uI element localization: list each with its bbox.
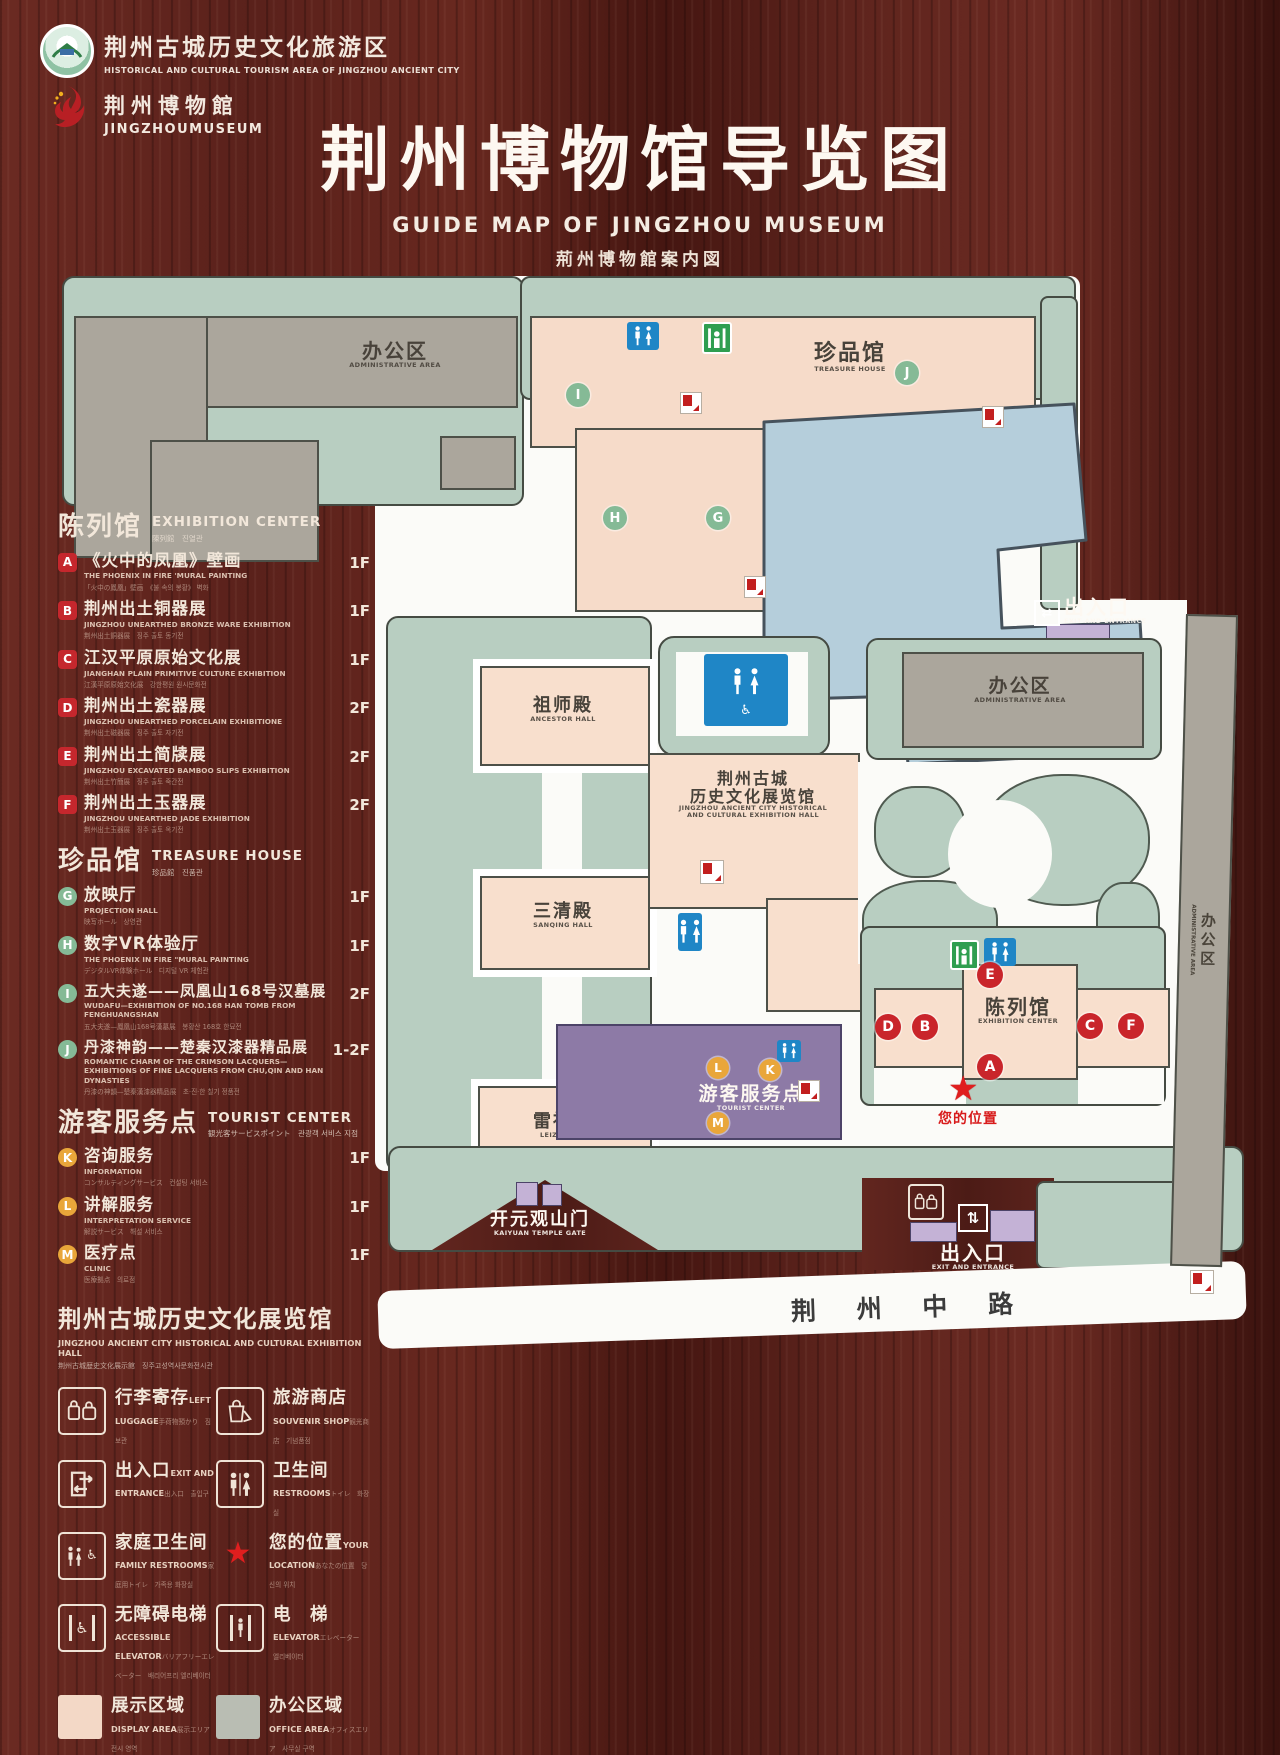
facility-left-luggage: 行李寄存LEFT LUGGAGE手荷物預かり 짐 보관 (58, 1387, 216, 1446)
row-en: CLINIC (84, 1264, 328, 1273)
wheelchair-icon: ♿ (75, 1621, 88, 1636)
map-marker-b: B (912, 1014, 938, 1040)
row-sub: 映写ホール 상영관 (84, 916, 328, 926)
legend-row-j: J 丹漆神韵——楚秦汉漆器精品展ROMANTIC CHARM OF THE CR… (58, 1039, 370, 1096)
badge-c: C (58, 650, 77, 669)
map-marker-k: K (759, 1059, 781, 1081)
page-title-jp: 荊州博物館案内図 (0, 245, 1280, 270)
title-block: 荆州博物馆导览图 GUIDE MAP OF JINGZHOU MUSEUM 荊州… (0, 104, 1280, 297)
legend-row-h: H 数字VR体验厅THE PHOENIX IN FIRE "MURAL PAIN… (58, 935, 370, 975)
row-floor: 1F (328, 1196, 370, 1216)
facility-exit-entrance: 出入口EXIT AND ENTRANCE出入口 출입구 (58, 1460, 216, 1519)
badge-b: B (58, 601, 77, 620)
row-floor: 2F (328, 794, 370, 814)
tourism-area-logo (40, 24, 94, 78)
row-en: ROMANTIC CHARM OF THE CRIMSON LACQUERS—E… (84, 1057, 328, 1084)
restrooms-icon-hall (678, 913, 702, 951)
facility-restrooms: 卫生间RESTROOMSトイレ 화장실 (216, 1460, 370, 1519)
exit-entrance-icon-top: ⇄ (1034, 600, 1060, 626)
row-en: JINGZHOU EXCAVATED BAMBOO SLIPS EXHIBITI… (84, 766, 328, 775)
section-title-en: TOURIST CENTER (208, 1112, 358, 1126)
your-location-label: 您的位置 (928, 1112, 1008, 1127)
display-area-swatch (58, 1695, 102, 1739)
tourism-logo-text: 荆州古城历史文化旅游区 HISTORICAL AND CULTURAL TOUR… (104, 28, 460, 75)
row-title: 数字VR体验厅 (84, 935, 328, 954)
row-title: 放映厅 (84, 886, 328, 905)
exhibition-center-label: 陈列馆 EXHIBITION CENTER (952, 996, 1084, 1025)
facility-your-location: ★ 您的位置YOUR LOCATIONあなたの位置 당신의 위치 (216, 1532, 370, 1591)
gate-block-right (542, 1184, 562, 1206)
legend-row-c: C 江汉平原原始文化展JIANGHAN PLAIN PRIMITIVE CULT… (58, 649, 370, 689)
elevator-icon-treasure (702, 322, 732, 354)
exhibition-center-notch-right (1078, 1064, 1164, 1104)
section-title-sub: 観光客サービスポイント 관광객 서비스 지점 (208, 1128, 358, 1139)
facility-en: SOUVENIR SHOP (273, 1416, 349, 1426)
office-area-swatch (216, 1695, 260, 1739)
map-marker-i: I (566, 383, 590, 407)
map-marker-j: J (895, 361, 919, 385)
small-gray-annex (440, 436, 516, 490)
row-en: INFORMATION (84, 1167, 328, 1176)
facility-en: RESTROOMS (273, 1488, 331, 1498)
row-title: 五大夫遂——凤凰山168号汉墓展 (84, 983, 328, 1000)
your-location-star: ★ (948, 1072, 978, 1106)
badge-k: K (58, 1148, 77, 1167)
legend-panel: 陈列馆 EXHIBITION CENTER 陳列館 진열관 A 《火中的凤凰》壁… (58, 500, 370, 1755)
row-sub: 「火中の鳳凰」壁画 《불 속의 봉황》 벽화 (84, 582, 328, 592)
map-marker-c: C (1077, 1013, 1103, 1039)
map-marker-h: H (603, 506, 627, 530)
exit-entrance-icon-bottom: ⇅ (958, 1204, 988, 1232)
row-en: WUDAFU—EXHIBITION OF NO.168 HAN TOMB FRO… (84, 1001, 328, 1019)
facility-red-icon-treasure-2 (982, 406, 1004, 428)
facility-elevator: 电 梯ELEVATORエレベーター 엘리베이터 (216, 1604, 370, 1682)
row-title: 医疗点 (84, 1244, 328, 1263)
map-marker-f: F (1118, 1013, 1144, 1039)
legend-row-i: I 五大夫遂——凤凰山168号汉墓展WUDAFU—EXHIBITION OF N… (58, 983, 370, 1030)
row-floor: 1F (328, 1244, 370, 1264)
map-marker-l: L (707, 1057, 729, 1079)
facility-red-icon-tourist (798, 1080, 820, 1102)
row-sub: 丹漆の神韻—楚秦漢漆器精品展 초·진·한 칠기 정품전 (84, 1086, 328, 1096)
gate-block-bottom-left (910, 1222, 957, 1242)
legend-row-b: B 荆州出土铜器展JINGZHOU UNEARTHED BRONZE WARE … (58, 600, 370, 640)
tourism-logo-cn: 荆州古城历史文化旅游区 (104, 28, 460, 62)
badge-e: E (58, 747, 77, 766)
row-floor: 2F (328, 983, 370, 1003)
legend-row-f: F 荆州出土玉器展JINGZHOU UNEARTHED JADE EXHIBIT… (58, 794, 370, 834)
row-title: 荆州出土玉器展 (84, 794, 328, 813)
souvenir-shop-icon (216, 1387, 264, 1435)
left-luggage-icon (58, 1387, 106, 1435)
badge-j: J (58, 1040, 77, 1059)
legend-row-a: A 《火中的凤凰》壁画THE PHOENIX IN FIRE 'MURAL PA… (58, 552, 370, 592)
legend-row-e: E 荆州出土简牍展JINGZHOU EXCAVATED BAMBOO SLIPS… (58, 746, 370, 786)
map-marker-d: D (875, 1014, 901, 1040)
row-sub: 医療拠点 의료점 (84, 1274, 328, 1284)
hall-note-sub: 荆州古城歴史文化展示館 징주고성역사문화전시관 (58, 1361, 370, 1371)
facility-family-restrooms: ♿ 家庭卫生间FAMILY RESTROOMS家庭用トイレ 가족용 화장실 (58, 1532, 216, 1591)
facility-sub: 出入口 출입구 (164, 1490, 209, 1498)
garden-pond (948, 800, 1052, 908)
facility-cn: 展示区域 (111, 1696, 185, 1716)
left-luggage-icon-map (908, 1184, 944, 1220)
row-sub: 荆州出土磁器展 징주 출토 자기전 (84, 727, 328, 737)
facility-souvenir-shop: 旅游商店SOUVENIR SHOP観光商店 기념품점 (216, 1387, 370, 1446)
elevator-icon (216, 1604, 264, 1652)
legend-row-g: G 放映厅PROJECTION HALL映写ホール 상영관 1F (58, 886, 370, 926)
ancient-city-hall-wing (766, 898, 862, 1012)
facility-en: OFFICE AREA (269, 1724, 329, 1734)
facility-cn: 您的位置 (269, 1533, 343, 1553)
row-floor: 1F (328, 600, 370, 620)
facility-red-icon-strip (1190, 1270, 1214, 1294)
row-floor: 2F (328, 697, 370, 717)
gate-label: 开元观山门 KAIYUAN TEMPLE GATE (460, 1210, 620, 1237)
exit-entrance-icon (58, 1460, 106, 1508)
row-floor: 2F (328, 746, 370, 766)
facility-red-icon-treasure-1 (680, 392, 702, 414)
admin-strip-label: 办公区 (1197, 912, 1219, 969)
wheelchair-icon: ♿ (86, 1549, 98, 1562)
row-title: 《火中的凤凰》壁画 (84, 552, 328, 571)
row-sub: 荆州出土銅器展 징주 출토 동기전 (84, 630, 328, 640)
row-title: 荆州出土简牍展 (84, 746, 328, 765)
section-exhibition-center: 陈列馆 EXHIBITION CENTER 陳列館 진열관 (58, 514, 370, 544)
row-sub: コンサルティングサービス 컨설팅 서비스 (84, 1177, 328, 1187)
page-title-en: GUIDE MAP OF JINGZHOU MUSEUM (0, 213, 1280, 237)
legend-row-l: L 讲解服务INTERPRETATION SERVICE解説サービス 해설 서비… (58, 1196, 370, 1236)
facility-cn: 电 梯 (273, 1605, 329, 1625)
facility-cn: 办公区域 (269, 1696, 343, 1716)
facility-cn: 旅游商店 (273, 1388, 347, 1408)
exhibition-hall-note: 荆州古城历史文化展览馆 JINGZHOU ANCIENT CITY HISTOR… (58, 1300, 370, 1371)
ancestor-hall-label: 祖师殿 ANCESTOR HALL (490, 696, 636, 723)
row-title: 讲解服务 (84, 1196, 328, 1215)
section-title-en: TREASURE HOUSE (152, 850, 303, 864)
badge-a: A (58, 553, 77, 572)
gate-block-left (516, 1182, 538, 1206)
row-sub: デジタルVR体験ホール 디지털 VR 체험관 (84, 965, 328, 975)
facility-cn: 无障碍电梯 (115, 1605, 208, 1625)
badge-d: D (58, 698, 77, 717)
row-en: THE PHOENIX IN FIRE 'MURAL PAINTING (84, 571, 328, 580)
exit-bottom-label: 出入口 EXIT AND ENTRANCE (912, 1242, 1034, 1271)
treasure-house-label: 珍品馆 TREASURE HOUSE (790, 342, 910, 373)
row-sub: 江漢平原原始文化展 강한평원 원시문화전 (84, 679, 328, 689)
row-floor: 1F (328, 552, 370, 572)
facility-red-icon-hall (700, 860, 724, 884)
row-title: 荆州出土瓷器展 (84, 697, 328, 716)
section-title-en: EXHIBITION CENTER (152, 516, 321, 530)
row-floor: 1-2F (328, 1039, 370, 1059)
row-floor: 1F (328, 649, 370, 669)
area-office: 办公区域OFFICE AREAオフィスエリア 사무실 구역 (216, 1695, 370, 1754)
guide-map-sign: { "header": { "logo_tourism": {"cn": "荆州… (0, 0, 1280, 1451)
section-title-sub: 陳列館 진열관 (152, 533, 321, 544)
admin-strip-label-en: ADMINISTRATIVE AREA (1189, 905, 1197, 976)
facility-cn: 出入口 (115, 1461, 171, 1481)
facility-en: ELEVATOR (273, 1632, 320, 1642)
section-treasure-house: 珍品馆 TREASURE HOUSE 珍品館 진품관 (58, 848, 370, 878)
your-location-icon: ★ (216, 1532, 260, 1576)
row-sub: 荆州出土竹簡展 징주 출토 죽간전 (84, 776, 328, 786)
facility-legend: 行李寄存LEFT LUGGAGE手荷物預かり 짐 보관 旅游商店SOUVENIR… (58, 1387, 370, 1754)
hall-note-cn: 荆州古城历史文化展览馆 (58, 1300, 370, 1334)
exit-top-label: 出入口 EXIT AND ENTRANCE (1064, 596, 1184, 625)
row-sub: 荆州出土玉器展 징주 출토 옥기전 (84, 824, 328, 834)
section-title-cn: 珍品馆 (58, 848, 142, 874)
badge-h: H (58, 936, 77, 955)
section-title-sub: 珍品館 진품관 (152, 867, 303, 878)
facility-red-icon-treasure-3 (744, 576, 766, 598)
ancient-city-hall-label: 荆州古城 历史文化展览馆 JINGZHOU ANCIENT CITY HISTO… (655, 770, 851, 819)
tourism-logo-emblem (47, 31, 87, 71)
row-title: 咨询服务 (84, 1147, 328, 1166)
row-title: 江汉平原原始文化展 (84, 649, 328, 668)
accessible-icon: ♿ (740, 704, 752, 717)
legend-row-k: K 咨询服务INFORMATIONコンサルティングサービス 컨설팅 서비스 1F (58, 1147, 370, 1187)
facility-cn: 家庭卫生间 (115, 1533, 208, 1553)
section-title-cn: 陈列馆 (58, 514, 142, 540)
section-title-cn: 游客服务点 (58, 1110, 198, 1136)
sanqing-hall-label: 三清殿 SANQING HALL (490, 902, 636, 929)
badge-g: G (58, 887, 77, 906)
row-en: JIANGHAN PLAIN PRIMITIVE CULTURE EXHIBIT… (84, 669, 328, 678)
map-marker-m: M (707, 1112, 729, 1134)
row-sub: 五大夫遂—鳳凰山168号漢墓展 봉황산 168호 한묘전 (84, 1021, 328, 1031)
row-floor: 1F (328, 1147, 370, 1167)
row-en: THE PHOENIX IN FIRE "MURAL PAINTING (84, 955, 328, 964)
admin-right-label: 办公区 ADMINISTRATIVE AREA (945, 676, 1095, 704)
map-marker-e: E (977, 962, 1003, 988)
restrooms-icon-tourist (777, 1040, 801, 1062)
badge-l: L (58, 1197, 77, 1216)
facility-cn: 行李寄存 (115, 1388, 189, 1408)
row-title: 荆州出土铜器展 (84, 600, 328, 619)
tourism-logo-en: HISTORICAL AND CULTURAL TOURISM AREA OF … (104, 65, 460, 75)
facility-cn: 卫生间 (273, 1461, 329, 1481)
badge-i: I (58, 984, 77, 1003)
elevator-icon-exhibition (950, 940, 979, 970)
restrooms-icon-treasure (627, 322, 659, 350)
row-floor: 1F (328, 935, 370, 955)
hall-note-en: JINGZHOU ANCIENT CITY HISTORICAL AND CUL… (58, 1338, 370, 1358)
legend-row-d: D 荆州出土瓷器展JINGZHOU UNEARTHED PORCELAIN EX… (58, 697, 370, 737)
section-tourist-center: 游客服务点 TOURIST CENTER 観光客サービスポイント 관광객 서비스… (58, 1110, 370, 1140)
area-display: 展示区域DISPLAY AREA展示エリア 전시 영역 (58, 1695, 216, 1754)
row-sub: 解説サービス 해설 서비스 (84, 1226, 328, 1236)
admin-top-label: 办公区 ADMINISTRATIVE AREA (330, 340, 460, 369)
row-floor: 1F (328, 886, 370, 906)
gate-block-bottom-right (990, 1210, 1035, 1242)
badge-f: F (58, 795, 77, 814)
row-en: PROJECTION HALL (84, 906, 328, 915)
facility-accessible-elevator: ♿ 无障碍电梯ACCESSIBLE ELEVATORバリアフリーエレベーター 배… (58, 1604, 216, 1682)
family-restrooms-icon: ♿ (58, 1532, 106, 1580)
map-marker-g: G (706, 506, 730, 530)
page-title: 荆州博物馆导览图 (0, 104, 1280, 205)
badge-m: M (58, 1245, 77, 1264)
legend-row-m: M 医疗点CLINIC医療拠点 의료점 1F (58, 1244, 370, 1284)
row-title: 丹漆神韵——楚秦汉漆器精品展 (84, 1039, 328, 1056)
map-marker-a: A (977, 1054, 1003, 1080)
facility-en: DISPLAY AREA (111, 1724, 177, 1734)
restrooms-icon-central: ♿ (704, 654, 788, 726)
row-en: JINGZHOU UNEARTHED PORCELAIN EXHIBITIONE (84, 717, 328, 726)
facility-en: FAMILY RESTROOMS (115, 1560, 208, 1570)
accessible-elevator-icon: ♿ (58, 1604, 106, 1652)
row-en: JINGZHOU UNEARTHED JADE EXHIBITION (84, 814, 328, 823)
lawn-bottom-right (1036, 1181, 1180, 1269)
row-en: JINGZHOU UNEARTHED BRONZE WARE EXHIBITIO… (84, 620, 328, 629)
restrooms-icon (216, 1460, 264, 1508)
row-en: INTERPRETATION SERVICE (84, 1216, 328, 1225)
